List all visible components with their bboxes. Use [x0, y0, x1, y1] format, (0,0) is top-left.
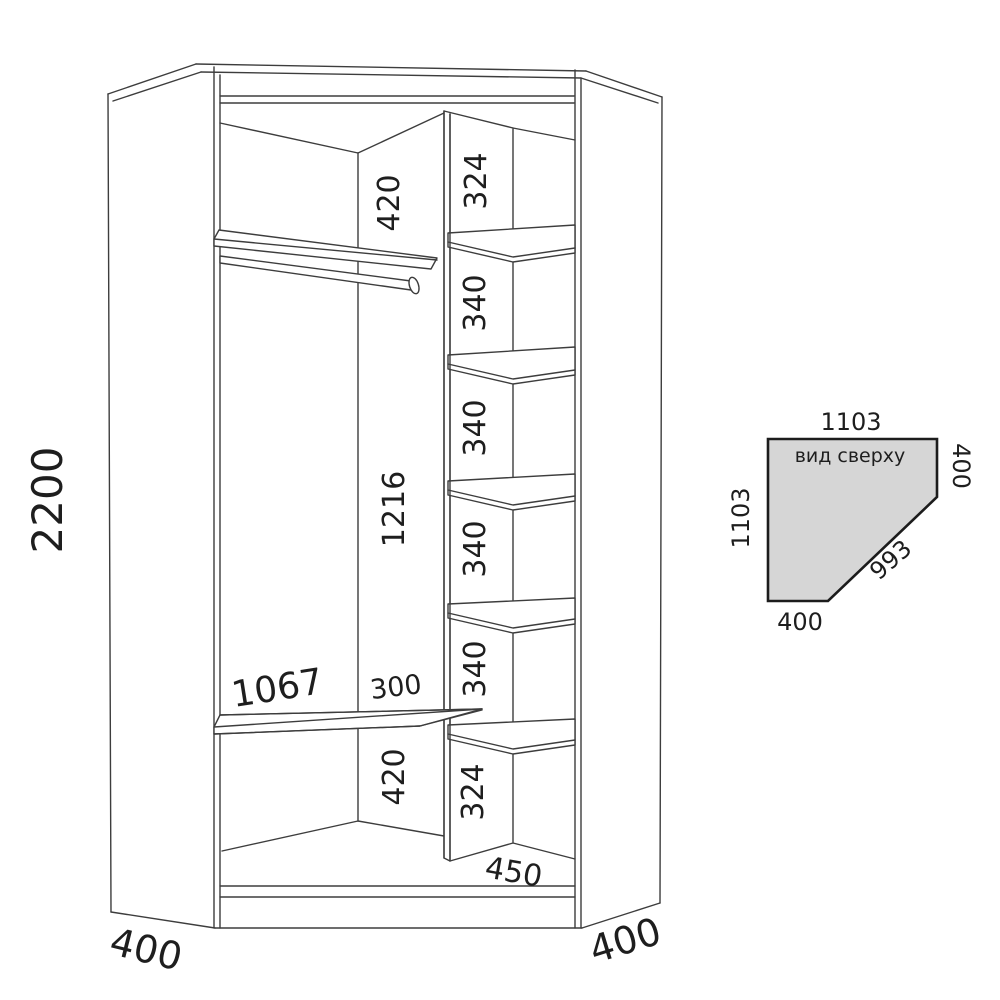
top-panel	[108, 64, 662, 103]
right-side-panel	[575, 70, 662, 928]
dim-column-width: 450	[482, 850, 544, 894]
top-view-diagram: вид сверху 1103 400 1103 993 400	[727, 408, 975, 636]
dim-cell-1: 324	[459, 152, 494, 209]
rod-end-cap	[407, 276, 421, 295]
dim-topview-bottom-side: 400	[777, 608, 823, 636]
dim-cell-4: 340	[458, 520, 493, 577]
dim-cell-6: 324	[456, 763, 491, 820]
dim-overall-height: 2200	[23, 447, 72, 554]
dim-cell-2: 340	[458, 274, 493, 331]
top-view-caption: вид сверху	[795, 445, 906, 467]
dim-right-depth: 400	[584, 909, 666, 972]
dim-left-depth: 400	[106, 919, 187, 979]
dim-shelf-right-gap: 300	[368, 669, 423, 706]
wardrobe-technical-drawing: 2200 400 400 420 1216 1067 300 420 324 3…	[0, 0, 1000, 1000]
dim-topview-right-side: 400	[947, 443, 975, 489]
top-rail	[220, 96, 574, 103]
dim-top-gap: 420	[372, 174, 407, 231]
dim-cell-3: 340	[458, 399, 493, 456]
dim-topview-left-depth: 1103	[727, 487, 755, 548]
dim-bottom-gap: 420	[377, 748, 412, 805]
left-side-panel	[108, 67, 220, 928]
drawing-page: 2200 400 400 420 1216 1067 300 420 324 3…	[0, 0, 1000, 1000]
dim-shelf-length: 1067	[229, 661, 326, 716]
wardrobe-front-view: 2200 400 400 420 1216 1067 300 420 324 3…	[23, 64, 666, 980]
dim-hanging-space: 1216	[377, 471, 412, 547]
dim-topview-top-width: 1103	[820, 408, 881, 436]
dim-cell-5: 340	[458, 640, 493, 697]
